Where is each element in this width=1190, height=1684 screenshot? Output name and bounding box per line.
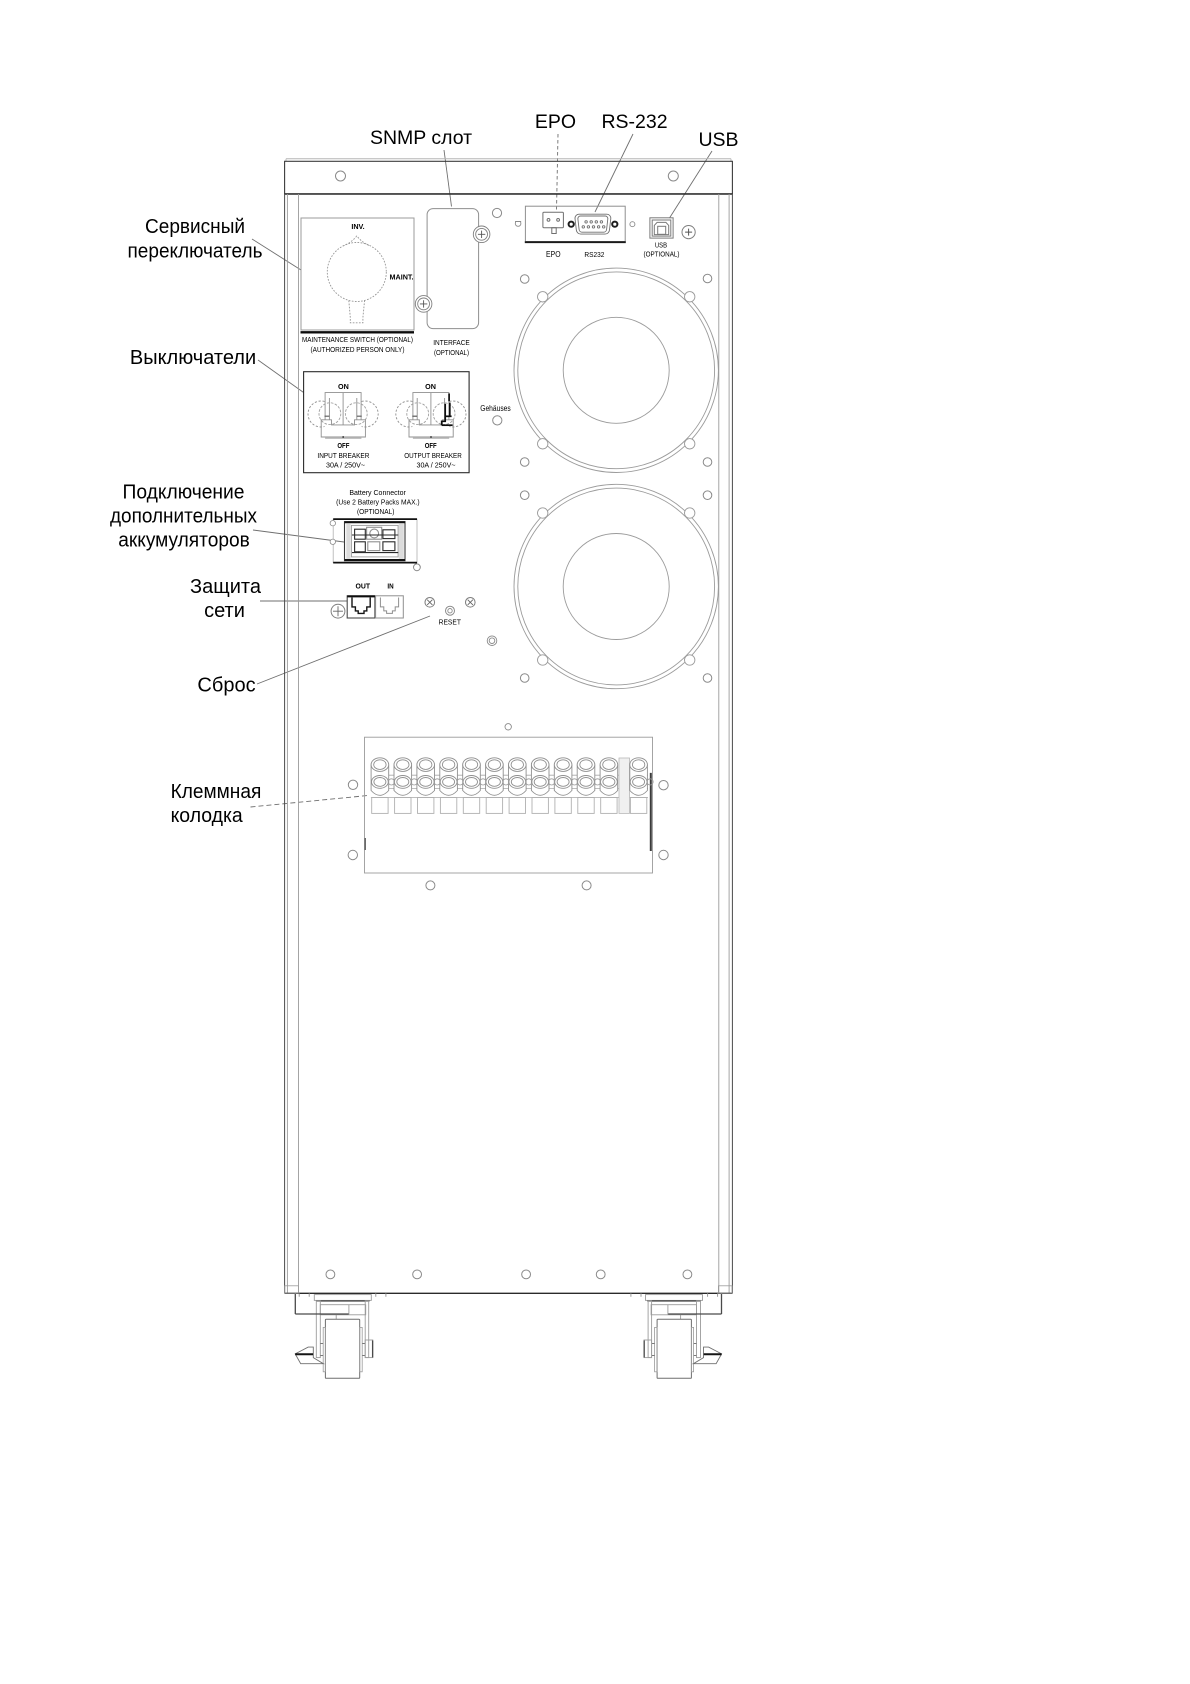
svg-text:30A / 250V~: 30A / 250V~ <box>326 461 365 470</box>
svg-text:INV.: INV. <box>351 222 364 231</box>
svg-text:Защита: Защита <box>190 576 262 598</box>
svg-text:USB: USB <box>655 243 667 250</box>
svg-text:INPUT BREAKER: INPUT BREAKER <box>317 451 369 460</box>
svg-text:OFF: OFF <box>425 441 438 450</box>
svg-text:(OPTIONAL): (OPTIONAL) <box>644 252 680 259</box>
svg-text:SNMP слот: SNMP слот <box>370 127 472 149</box>
svg-text:Клеммная: Клеммная <box>171 781 262 803</box>
svg-text:ON: ON <box>338 382 349 391</box>
svg-text:(AUTHORIZED PERSON ONLY): (AUTHORIZED PERSON ONLY) <box>311 345 405 354</box>
svg-text:EPO: EPO <box>546 250 561 259</box>
svg-text:Сервисный: Сервисный <box>145 216 245 238</box>
svg-text:OUT: OUT <box>356 581 371 590</box>
svg-text:INTERFACE: INTERFACE <box>433 338 470 347</box>
svg-text:RS-232: RS-232 <box>601 111 667 133</box>
svg-text:ON: ON <box>425 382 436 391</box>
svg-text:OUTPUT BREAKER: OUTPUT BREAKER <box>404 451 462 460</box>
svg-text:Подключение: Подключение <box>123 482 245 504</box>
svg-text:Выключатели: Выключатели <box>130 347 256 369</box>
svg-text:переключатель: переключатель <box>128 241 263 263</box>
svg-text:аккумуляторов: аккумуляторов <box>118 530 250 552</box>
svg-text:сети: сети <box>204 600 245 622</box>
svg-text:колодка: колодка <box>171 805 244 827</box>
svg-text:MAINT.: MAINT. <box>390 273 414 282</box>
svg-text:Battery Connector: Battery Connector <box>349 490 406 497</box>
svg-text:(OPTIONAL): (OPTIONAL) <box>357 509 395 516</box>
svg-text:Gehäuses: Gehäuses <box>480 404 511 413</box>
svg-text:IN: IN <box>387 581 393 590</box>
svg-text:(OPTIONAL): (OPTIONAL) <box>434 348 469 357</box>
svg-text:дополнительных: дополнительных <box>110 506 257 528</box>
svg-text:EPO: EPO <box>535 111 576 133</box>
svg-text:(Use 2 Battery Packs MAX.): (Use 2 Battery Packs MAX.) <box>336 500 420 507</box>
svg-text:OFF: OFF <box>337 441 350 450</box>
svg-text:30A / 250V~: 30A / 250V~ <box>417 461 456 470</box>
svg-text:USB: USB <box>698 129 738 151</box>
svg-text:MAINTENANCE SWITCH (OPTIONAL): MAINTENANCE SWITCH (OPTIONAL) <box>302 335 413 344</box>
svg-text:RS232: RS232 <box>584 250 604 259</box>
svg-text:RESET: RESET <box>439 617 462 626</box>
svg-text:Сброс: Сброс <box>197 675 255 697</box>
